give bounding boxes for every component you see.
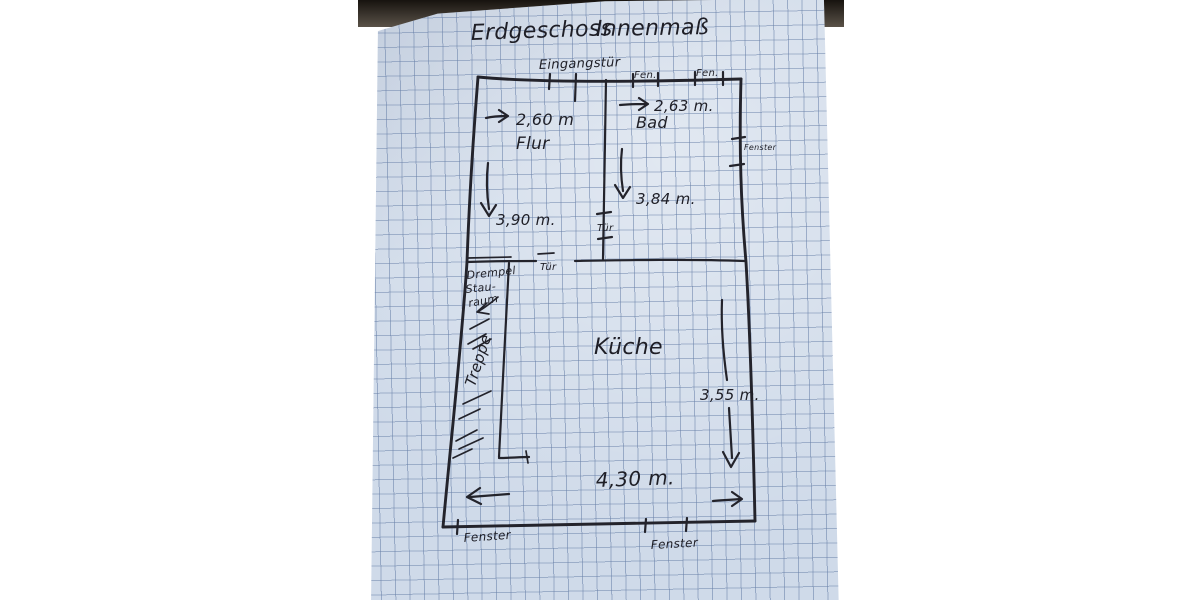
stair-hatch [470,319,489,329]
arrow-kueche-depth-upper [722,300,727,380]
entrance-door-label: Eingangstür [539,55,622,73]
title-innenmass: Innenmaß [596,15,709,42]
arrow-bottom-width-right [713,492,742,506]
flur-width-dimension: 2,60 m [516,110,574,129]
arrow-bad-width [620,98,648,110]
bad-door-label: Tür [597,223,614,234]
tick-entrance-left [549,74,550,89]
wall-stairs-inner [499,263,509,457]
stair-hatch [459,438,483,449]
tick-stairs-foot [526,451,528,463]
tick-inner-door-dash [538,253,554,254]
stair-hatch [453,449,472,458]
bottom-window-left-label: Fenster [463,528,512,545]
tick-right-window-top [732,137,745,139]
kueche-depth-dimension: 3,55 m. [700,386,760,404]
top-window1-label: Fen. [634,70,657,81]
arrow-bad-depth [615,149,630,198]
tick-bad-door-bottom [598,237,612,239]
arrow-flur-width [486,110,508,122]
title-erdgeschoss: Erdgeschoss [470,16,612,46]
tick-bottom-window-left [457,520,458,534]
wall-middle-left-segment [467,261,536,262]
flur-room-label: Flur [516,134,550,154]
wall-bottom [443,521,755,527]
stair-hatch [463,391,491,404]
wall-middle-right-segment [575,260,745,261]
treppe-label: Treppe [461,332,495,388]
arrow-bottom-width-left [467,488,509,504]
tick-bad-door-top [597,212,611,214]
tick-entrance-right [575,74,576,101]
inner-door-label: Tür [540,262,557,273]
arrow-flur-depth [481,163,496,216]
bad-depth-dimension: 3,84 m. [636,190,696,208]
stair-hatch [456,430,477,441]
top-window2-label: Fen. [696,68,719,79]
stair-hatch [459,409,480,419]
flur-depth-dimension: 3,90 m. [496,211,556,229]
photo-of-floorplan: Erdgeschoss Innenmaß Eingangstür Fen. Fe… [0,0,1200,600]
tick-bottom-window-right-b [686,518,687,531]
tick-bottom-window-right-a [645,519,646,532]
bad-room-label: Bad [636,113,668,132]
wall-storage-top-doubled [468,257,511,258]
arrow-kueche-depth-lower [723,408,739,467]
wall-stairs-foot [499,457,529,458]
bottom-window-right-label: Fenster [650,536,699,552]
kueche-width-dimension: 4,30 m. [595,465,675,492]
kueche-room-label: Küche [594,335,663,360]
right-window-label: Fenster [744,143,777,152]
floorplan-drawing: Erdgeschoss Innenmaß Eingangstür Fen. Fe… [0,0,1200,600]
